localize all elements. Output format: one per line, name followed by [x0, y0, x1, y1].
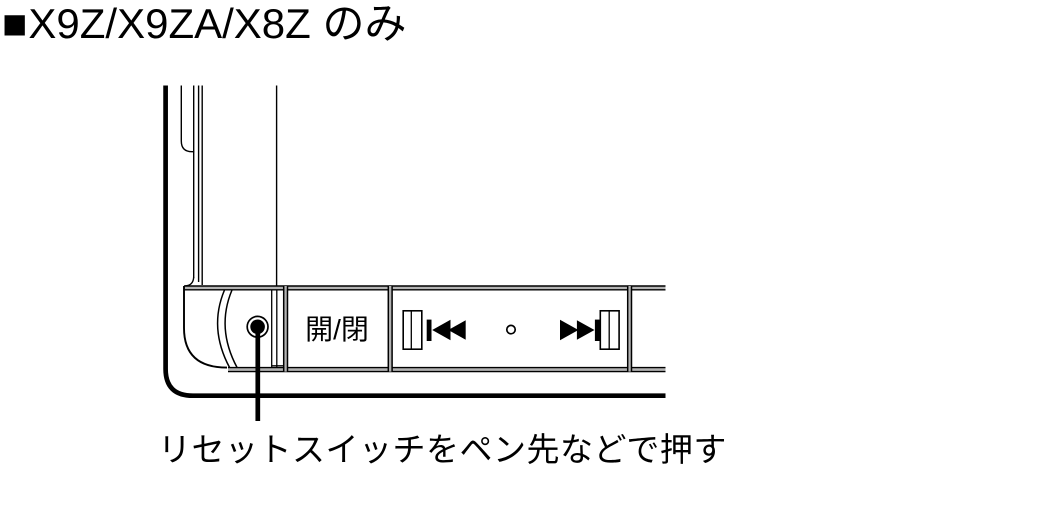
- reset-switch-caption: リセットスイッチをペン先などで押す: [158, 423, 727, 471]
- previous-track-key: [403, 311, 422, 349]
- manual-page: ■X9Z/X9ZA/X8Z のみ: [0, 0, 1051, 507]
- panel-bottom-edge: [228, 368, 666, 372]
- corner-block-outline: [184, 286, 227, 368]
- lid-edge-tab: [181, 86, 194, 152]
- corner-strip-lines: [272, 290, 284, 368]
- eject-button-label: 開/閉: [305, 314, 369, 345]
- next-track-icon: [560, 320, 600, 341]
- previous-track-icon: [427, 320, 466, 341]
- corner-curve-lines: [218, 290, 237, 367]
- indicator-hole-icon: [507, 325, 515, 333]
- panel-top-edge: [184, 286, 666, 290]
- next-track-key: [600, 311, 619, 349]
- body-edge-lines: [185, 86, 277, 286]
